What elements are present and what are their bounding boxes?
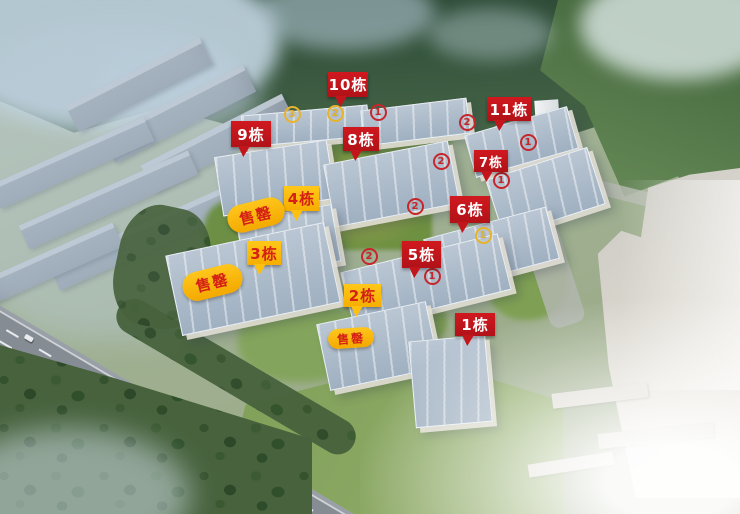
unit-number-text: 1 (429, 271, 436, 282)
building-label-text: 3栋 (250, 243, 277, 264)
building-label-5栋[interactable]: 5栋 (402, 241, 441, 268)
building-label-text: 1栋 (461, 314, 488, 335)
building-label-6栋[interactable]: 6栋 (450, 196, 490, 223)
building-label-7栋[interactable]: 7栋 (474, 150, 508, 172)
building-label-text: 6栋 (456, 199, 483, 220)
unit-number-marker: 2 (433, 153, 450, 170)
building-label-text: 10栋 (329, 74, 368, 95)
building-label-text: 2栋 (349, 285, 376, 306)
building-label-text: 7栋 (479, 152, 503, 171)
building-label-text: 8栋 (347, 129, 374, 150)
unit-number-text: 1 (375, 107, 382, 118)
building-label-3栋[interactable]: 3栋 (247, 241, 281, 265)
building-label-4栋[interactable]: 4栋 (284, 186, 319, 211)
unit-number-marker: 1 (424, 268, 441, 285)
building-label-text: 9栋 (237, 124, 264, 145)
building-label-text: 4栋 (288, 188, 315, 209)
building-label-text: 5栋 (408, 244, 435, 265)
unit-number-text: 1 (525, 137, 532, 148)
unit-number-text: 2 (412, 201, 419, 212)
sold-out-badge: 售罄 (327, 326, 374, 349)
aerial-site-map: 10栋9栋8栋11栋7栋6栋5栋1栋4栋3栋2栋售罄售罄售罄3212121212… (0, 0, 740, 514)
unit-number-text: 2 (332, 108, 339, 119)
unit-number-marker: 2 (407, 198, 424, 215)
sold-out-badge: 售罄 (179, 261, 245, 304)
building-label-1栋[interactable]: 1栋 (455, 313, 495, 336)
unit-number-marker: 1 (475, 227, 492, 244)
unit-number-text: 3 (289, 109, 296, 120)
building-label-11栋[interactable]: 11栋 (487, 97, 531, 121)
unit-number-text: 2 (464, 117, 471, 128)
building-label-8栋[interactable]: 8栋 (343, 127, 379, 151)
unit-number-text: 2 (438, 156, 445, 167)
unit-number-marker: 1 (520, 134, 537, 151)
marker-layer: 10栋9栋8栋11栋7栋6栋5栋1栋4栋3栋2栋售罄售罄售罄3212121212… (0, 0, 740, 514)
building-label-2栋[interactable]: 2栋 (344, 284, 381, 307)
unit-number-marker: 2 (327, 105, 344, 122)
sold-out-text: 售罄 (193, 268, 231, 297)
sold-out-badge: 售罄 (224, 194, 287, 235)
sold-out-text: 售罄 (336, 329, 365, 348)
unit-number-marker: 1 (370, 104, 387, 121)
sold-out-text: 售罄 (237, 201, 275, 230)
building-label-text: 11栋 (490, 99, 529, 120)
unit-number-marker: 1 (493, 172, 510, 189)
unit-number-text: 1 (498, 175, 505, 186)
unit-number-text: 2 (366, 251, 373, 262)
unit-number-text: 1 (480, 230, 487, 241)
unit-number-marker: 2 (459, 114, 476, 131)
building-label-9栋[interactable]: 9栋 (231, 121, 271, 147)
building-label-10栋[interactable]: 10栋 (328, 72, 368, 97)
unit-number-marker: 3 (284, 106, 301, 123)
unit-number-marker: 2 (361, 248, 378, 265)
